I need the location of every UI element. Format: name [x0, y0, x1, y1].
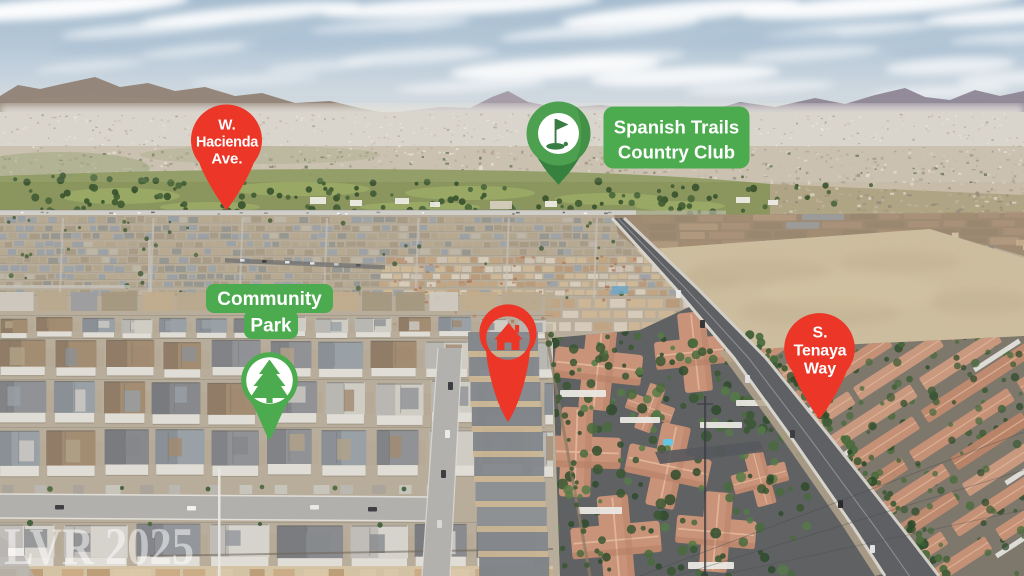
svg-text:S.: S.: [812, 325, 827, 342]
svg-text:Way: Way: [804, 361, 836, 378]
svg-text:W.: W.: [218, 117, 236, 134]
svg-text:Spanish Trails: Spanish Trails: [614, 117, 739, 138]
svg-text:Ave.: Ave.: [211, 151, 242, 168]
svg-text:LVR 2025: LVR 2025: [4, 518, 194, 576]
svg-text:Park: Park: [250, 316, 292, 337]
svg-text:Hacienda: Hacienda: [196, 135, 259, 151]
svg-text:Community: Community: [217, 289, 322, 310]
svg-text:Country Club: Country Club: [618, 142, 735, 163]
svg-text:Tenaya: Tenaya: [794, 343, 847, 360]
